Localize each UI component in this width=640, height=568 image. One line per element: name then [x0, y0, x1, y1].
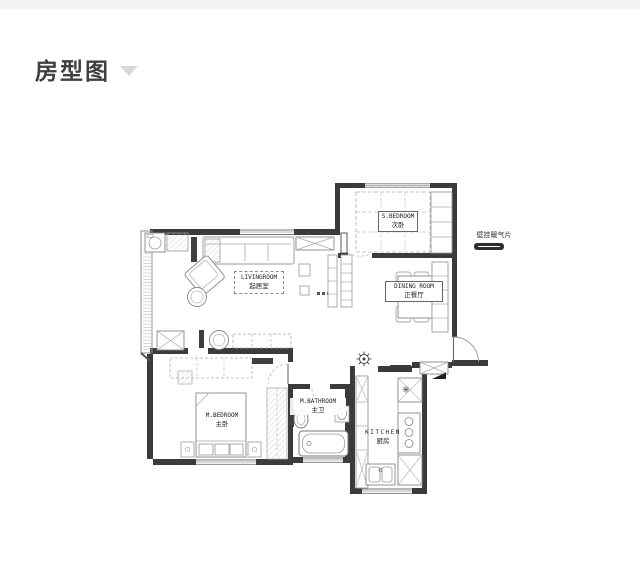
round-table	[210, 331, 229, 350]
wardrobe-east	[267, 388, 287, 459]
room-label-livingroom: LIVINGROOM 起居室	[234, 271, 284, 294]
room-name-en: KITCHEN	[360, 429, 406, 437]
closet-dashed	[170, 358, 252, 384]
floorplan-drawing	[0, 0, 640, 568]
radiator	[252, 358, 273, 364]
lower-cabinet-x	[398, 455, 422, 485]
room-name-en: S.BEDROOM	[380, 213, 416, 221]
washing-machine	[145, 233, 165, 252]
room-label-s-bedroom: S.BEDROOM 次卧	[378, 211, 418, 232]
shoe-bench	[390, 365, 411, 372]
room-name-zh: 主卫	[290, 406, 346, 415]
cabinet-x	[296, 237, 334, 250]
room-name-zh: 次卧	[380, 221, 416, 230]
ottoman	[188, 288, 207, 307]
radiator-annotation: 壁挂暖气片	[468, 230, 520, 240]
sink	[366, 464, 395, 485]
room-label-dining: DINING ROOM 正餐厅	[385, 281, 443, 302]
wardrobe	[431, 192, 452, 253]
radiator-icon	[474, 243, 504, 250]
room-name-en: M.BATHROOM	[290, 398, 346, 406]
room-name-zh: 主卧	[196, 420, 248, 429]
radiator	[191, 237, 197, 262]
boiler-icon	[357, 352, 372, 367]
room-label-m-bathroom: M.BATHROOM 主卫	[290, 398, 346, 415]
entry	[357, 337, 479, 379]
floorplan: S.BEDROOM 次卧 LIVINGROOM 起居室 DINING ROOM …	[0, 0, 640, 568]
room-name-zh: 厨房	[360, 437, 406, 446]
bedroom-door	[268, 364, 288, 384]
side-tables	[299, 264, 330, 295]
m-bedroom-furniture	[170, 358, 288, 459]
drying-rack	[167, 233, 188, 251]
tv-console	[233, 334, 291, 348]
room-name-en: DINING ROOM	[387, 283, 441, 291]
sofa	[203, 237, 294, 264]
bathtub	[299, 431, 348, 456]
room-name-zh: 正餐厅	[387, 291, 441, 300]
room-name-en: M.BEDROOM	[196, 412, 248, 420]
tall-shelves	[328, 255, 352, 307]
room-label-m-bedroom: M.BEDROOM 主卧	[196, 412, 248, 429]
fridge	[398, 378, 422, 402]
room-name-zh: 起居室	[236, 282, 282, 291]
room-name-en: LIVINGROOM	[236, 274, 282, 282]
room-label-kitchen: KITCHEN 厨房	[360, 429, 406, 446]
wardrobe-x	[157, 331, 184, 350]
door-jamb	[199, 330, 204, 348]
entry-cabinet-x	[420, 362, 448, 374]
